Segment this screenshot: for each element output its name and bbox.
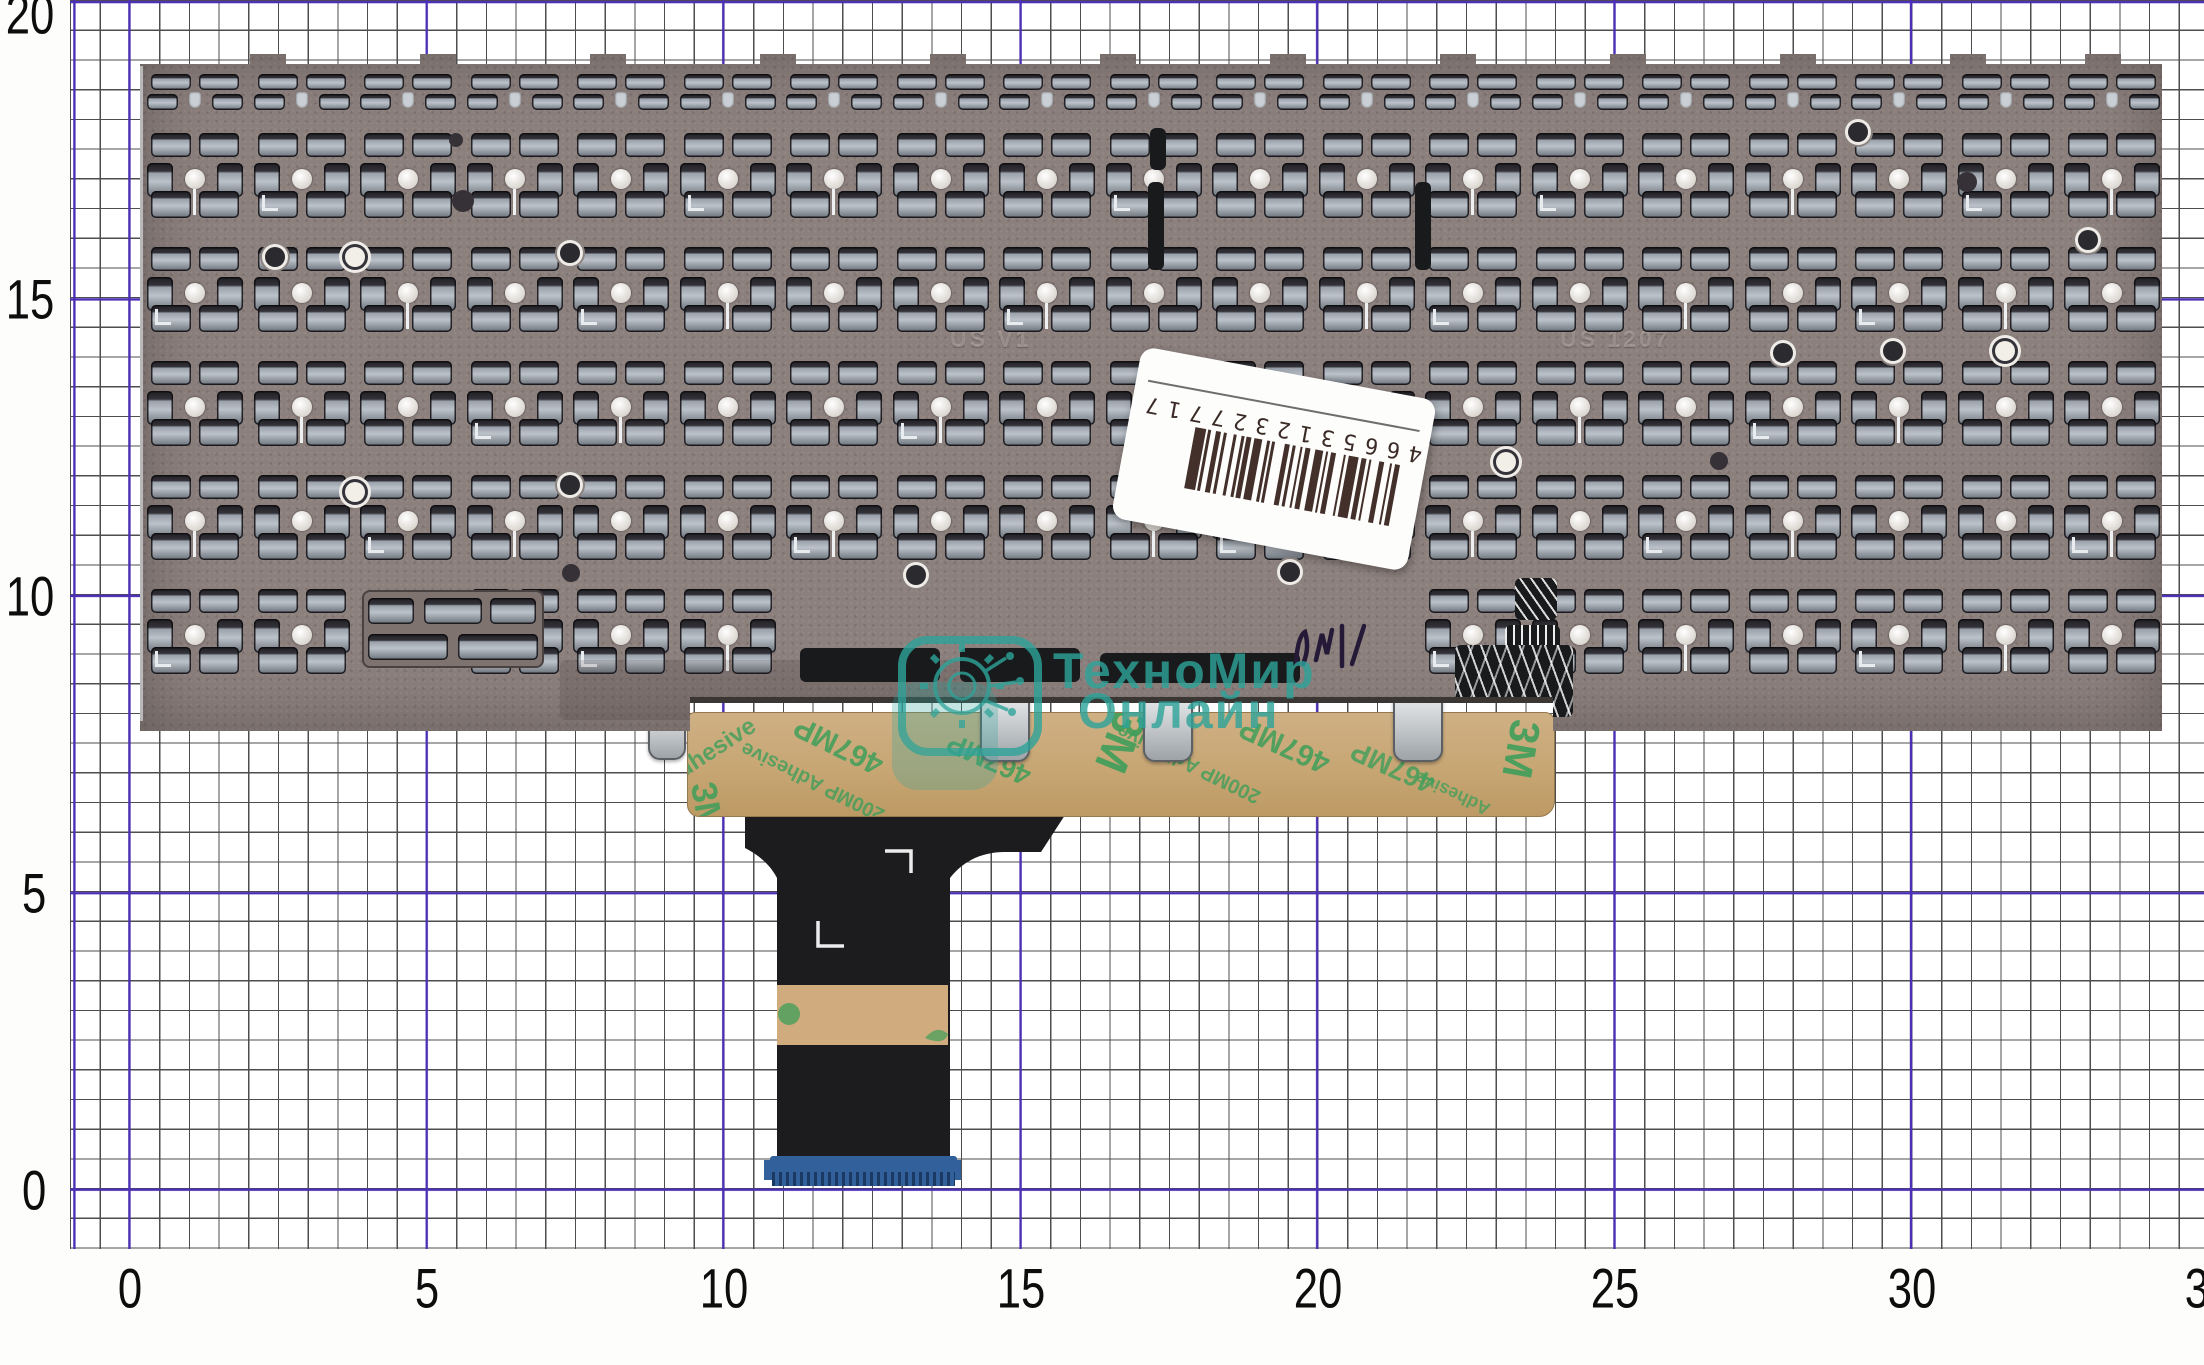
- connector-teeth: [772, 1172, 955, 1186]
- key-slot: [412, 247, 452, 271]
- plate-dark-dot: [452, 190, 474, 212]
- key-slot: [2068, 191, 2108, 218]
- clip-hook-highlight: [1646, 537, 1662, 553]
- ruler-y-label: 5: [6, 861, 47, 926]
- scissor-pivot-dot: [931, 397, 951, 417]
- key-slot: [945, 361, 985, 385]
- key-slot: [151, 361, 191, 385]
- key-slot: [2010, 589, 2050, 613]
- key-slot: [732, 589, 772, 613]
- key-arch: [2106, 92, 2118, 108]
- key-slot: [1855, 361, 1895, 385]
- key-slot: [790, 305, 830, 332]
- key-slot: [1584, 533, 1624, 560]
- key-slot: [1855, 419, 1895, 446]
- qc-marker-scribble: [1290, 618, 1380, 678]
- key-slot: [151, 533, 191, 560]
- key-slot: [519, 419, 559, 446]
- key-slot: [1477, 133, 1517, 157]
- key-slot: [1749, 305, 1789, 332]
- key-slot: [519, 475, 559, 499]
- key-slot: [684, 74, 724, 90]
- key-slot: [1536, 475, 1576, 499]
- key-slot: [786, 94, 817, 110]
- key-slot: [1749, 191, 1789, 218]
- key-slot: [1903, 589, 1943, 613]
- key-slot: [1110, 305, 1150, 332]
- key-arch: [615, 92, 627, 108]
- scissor-pivot-dot: [2102, 511, 2122, 531]
- clip-hook-highlight: [1540, 195, 1556, 211]
- screw-hole: [1883, 341, 1903, 361]
- scissor-pivot-dot: [1889, 283, 1909, 303]
- key-slot: [1690, 133, 1730, 157]
- key-slot: [412, 361, 452, 385]
- key-cluster: [467, 70, 563, 112]
- key-slot: [1429, 133, 1469, 157]
- key-slot: [258, 74, 298, 90]
- key-slot: [1584, 191, 1624, 218]
- key-slot: [1064, 94, 1095, 110]
- key-slot: [732, 133, 772, 157]
- key-slot: [790, 361, 830, 385]
- key-slot: [1749, 475, 1789, 499]
- key-slot: [1158, 305, 1198, 332]
- plate-left-edge-highlight: [140, 66, 143, 721]
- key-slot: [471, 533, 511, 560]
- spacebar-stabilizer-block: [362, 590, 544, 668]
- key-slot: [893, 94, 924, 110]
- key-slot: [1477, 533, 1517, 560]
- tape-print-text: 467MP: [1235, 712, 1336, 780]
- key-cluster: [1745, 247, 1841, 332]
- key-slot: [306, 191, 346, 218]
- key-slot: [897, 133, 937, 157]
- key-slot: [1536, 305, 1576, 332]
- scissor-pivot-dot: [611, 511, 631, 531]
- clip-hook-highlight: [2072, 537, 2088, 553]
- key-slot: [1277, 94, 1308, 110]
- key-slot: [1584, 361, 1624, 385]
- scissor-pivot-dot: [398, 511, 418, 531]
- key-slot: [1384, 94, 1415, 110]
- key-cluster: [1638, 475, 1734, 560]
- key-slot: [2068, 647, 2108, 674]
- key-slot: [2068, 133, 2108, 157]
- key-slot: [519, 361, 559, 385]
- scissor-pivot-dot: [1570, 169, 1590, 189]
- membrane-trace-line: [1152, 531, 1155, 557]
- key-slot: [2116, 74, 2156, 90]
- key-cluster: [1425, 361, 1521, 446]
- key-slot: [1051, 533, 1091, 560]
- key-slot: [1003, 133, 1043, 157]
- key-cluster: [1638, 361, 1734, 446]
- screw-hole: [1848, 122, 1868, 142]
- key-slot: [1584, 647, 1624, 674]
- key-slot: [732, 191, 772, 218]
- scissor-pivot-dot: [1570, 511, 1590, 531]
- scissor-pivot-dot: [1676, 397, 1696, 417]
- membrane-trace-line: [513, 531, 516, 557]
- key-slot: [732, 475, 772, 499]
- key-slot: [897, 74, 937, 90]
- key-slot: [577, 247, 617, 271]
- key-slot: [1797, 361, 1837, 385]
- membrane-trace-line: [1365, 303, 1368, 329]
- key-cluster: [999, 361, 1095, 446]
- key-slot: [625, 419, 665, 446]
- key-arch: [1254, 92, 1266, 108]
- ruler-x-label: 20: [1294, 1256, 1343, 1321]
- membrane-trace-line: [406, 303, 409, 329]
- scissor-pivot-dot: [1463, 625, 1483, 645]
- key-slot: [1903, 191, 1943, 218]
- key-slot: [1797, 533, 1837, 560]
- key-slot: [1797, 419, 1837, 446]
- key-slot: [1855, 533, 1895, 560]
- key-slot: [2068, 475, 2108, 499]
- key-slot: [2116, 589, 2156, 613]
- key-slot: [790, 191, 830, 218]
- key-slot: [258, 133, 298, 157]
- key-slot: [2068, 74, 2108, 90]
- key-slot: [1323, 74, 1363, 90]
- key-slot: [1642, 361, 1682, 385]
- clip-hook-highlight: [688, 195, 704, 211]
- key-slot: [1690, 191, 1730, 218]
- key-slot: [945, 247, 985, 271]
- key-slot: [1051, 475, 1091, 499]
- key-slot: [368, 634, 448, 660]
- key-slot: [1323, 305, 1363, 332]
- key-slot: [684, 305, 724, 332]
- key-slot: [306, 74, 346, 90]
- key-cluster: [2064, 475, 2160, 560]
- key-slot: [1371, 133, 1411, 157]
- scissor-pivot-dot: [292, 625, 312, 645]
- key-slot: [1903, 305, 1943, 332]
- plate-dark-dot: [1957, 172, 1977, 192]
- key-slot: [1158, 533, 1198, 560]
- key-slot: [1797, 74, 1837, 90]
- key-cluster: [360, 133, 456, 218]
- key-slot: [897, 533, 937, 560]
- plate-dark-dot: [449, 133, 463, 147]
- key-cluster: [786, 361, 882, 446]
- scissor-pivot-dot: [185, 625, 205, 645]
- key-slot: [1323, 133, 1363, 157]
- key-arch: [1041, 92, 1053, 108]
- key-cluster: [1638, 589, 1734, 674]
- key-slot: [1425, 94, 1456, 110]
- key-slot: [1051, 247, 1091, 271]
- key-slot: [1749, 589, 1789, 613]
- key-slot: [368, 598, 414, 624]
- key-slot: [412, 419, 452, 446]
- key-cluster: [254, 475, 350, 560]
- key-cluster: [680, 133, 776, 218]
- key-slot: [945, 74, 985, 90]
- key-slot: [1003, 419, 1043, 446]
- key-cluster: [680, 361, 776, 446]
- membrane-trace-line: [2110, 189, 2113, 215]
- key-slot: [1597, 94, 1628, 110]
- key-slot: [151, 247, 191, 271]
- product-photo-stage: 20151050 05101520253035 Adhesive467MP200…: [0, 0, 2204, 1365]
- key-slot: [199, 419, 239, 446]
- key-arch: [189, 92, 201, 108]
- key-slot: [790, 74, 830, 90]
- key-slot: [1642, 247, 1682, 271]
- key-slot: [1003, 361, 1043, 385]
- flex-trace-window: [1150, 128, 1166, 170]
- key-slot: [532, 94, 563, 110]
- membrane-trace-line: [2004, 303, 2007, 329]
- key-slot: [1642, 133, 1682, 157]
- key-slot: [577, 74, 617, 90]
- key-slot: [2010, 647, 2050, 674]
- key-slot: [1110, 247, 1150, 271]
- key-arch: [1361, 92, 1373, 108]
- key-slot: [2010, 191, 2050, 218]
- flex-trace-window: [800, 648, 940, 682]
- key-cluster: [1319, 133, 1415, 218]
- key-slot: [1371, 191, 1411, 218]
- key-slot: [1110, 533, 1150, 560]
- scissor-pivot-dot: [292, 283, 312, 303]
- scissor-pivot-dot: [505, 283, 525, 303]
- cable-tape-band: [777, 985, 948, 1045]
- key-slot: [1642, 647, 1682, 674]
- key-cluster: [1958, 70, 2054, 112]
- key-slot: [1690, 247, 1730, 271]
- clip-hook-highlight: [1859, 651, 1875, 667]
- key-slot: [2116, 247, 2156, 271]
- key-slot: [425, 94, 456, 110]
- key-slot: [1110, 133, 1150, 157]
- scissor-pivot-dot: [1996, 397, 2016, 417]
- key-slot: [1477, 589, 1517, 613]
- key-cluster: [2064, 361, 2160, 446]
- flex-trace-window: [960, 648, 1080, 682]
- scissor-pivot-dot: [1996, 169, 2016, 189]
- key-slot: [625, 191, 665, 218]
- scissor-pivot-dot: [824, 397, 844, 417]
- key-slot: [1855, 589, 1895, 613]
- scissor-pivot-dot: [1676, 169, 1696, 189]
- key-slot: [1536, 361, 1576, 385]
- scissor-pivot-dot: [1570, 625, 1590, 645]
- membrane-trace-line: [1578, 417, 1581, 443]
- key-slot: [412, 133, 452, 157]
- key-cluster: [1958, 361, 2054, 446]
- key-slot: [151, 589, 191, 613]
- key-slot: [790, 419, 830, 446]
- clip-hook-highlight: [155, 651, 171, 667]
- clip-hook-highlight: [262, 195, 278, 211]
- key-slot: [838, 475, 878, 499]
- key-cluster: [147, 475, 243, 560]
- scissor-pivot-dot: [611, 397, 631, 417]
- key-slot: [199, 361, 239, 385]
- key-slot: [306, 247, 346, 271]
- key-slot: [1962, 74, 2002, 90]
- key-slot: [1110, 74, 1150, 90]
- key-cluster: [1851, 70, 1947, 112]
- scissor-pivot-dot: [1463, 169, 1483, 189]
- key-cluster: [2064, 589, 2160, 674]
- key-slot: [519, 191, 559, 218]
- plate-dark-dot: [562, 564, 580, 582]
- screw-hole: [560, 475, 580, 495]
- scissor-pivot-dot: [1037, 397, 1057, 417]
- key-slot: [1797, 305, 1837, 332]
- key-slot: [519, 133, 559, 157]
- key-slot: [1319, 94, 1350, 110]
- key-slot: [1429, 361, 1469, 385]
- clip-hook-highlight: [1433, 651, 1449, 667]
- key-arch: [1467, 92, 1479, 108]
- key-slot: [306, 589, 346, 613]
- key-slot: [1690, 647, 1730, 674]
- key-slot: [1051, 305, 1091, 332]
- key-slot: [1851, 94, 1882, 110]
- key-slot: [412, 74, 452, 90]
- clip-hook-highlight: [1433, 309, 1449, 325]
- key-slot: [1690, 305, 1730, 332]
- key-slot: [199, 247, 239, 271]
- key-slot: [577, 361, 617, 385]
- key-slot: [577, 533, 617, 560]
- key-slot: [732, 247, 772, 271]
- membrane-trace-line: [726, 303, 729, 329]
- key-slot: [1855, 191, 1895, 218]
- key-slot: [199, 647, 239, 674]
- key-cluster: [1425, 247, 1521, 332]
- ruler-x-label: 10: [700, 1256, 749, 1321]
- clip-hook-highlight: [901, 423, 917, 439]
- key-slot: [1536, 74, 1576, 90]
- key-slot: [2129, 94, 2160, 110]
- tape-print-text: 3M: [1492, 716, 1549, 782]
- key-cluster: [999, 247, 1095, 332]
- key-slot: [1749, 247, 1789, 271]
- key-arch: [1148, 92, 1160, 108]
- key-cluster: [2064, 247, 2160, 332]
- key-cluster: [254, 70, 350, 112]
- scissor-pivot-dot: [292, 397, 312, 417]
- membrane-trace-line: [939, 417, 942, 443]
- key-slot: [1642, 191, 1682, 218]
- key-slot: [1690, 74, 1730, 90]
- key-slot: [2116, 475, 2156, 499]
- key-cluster: [467, 133, 563, 218]
- key-slot: [2116, 191, 2156, 218]
- key-cluster: [786, 133, 882, 218]
- key-slot: [519, 305, 559, 332]
- key-slot: [838, 305, 878, 332]
- clip-hook-highlight: [1966, 195, 1982, 211]
- key-slot: [1371, 305, 1411, 332]
- key-slot: [1584, 589, 1624, 613]
- clip-hook-highlight: [155, 309, 171, 325]
- scissor-pivot-dot: [1463, 511, 1483, 531]
- scissor-pivot-dot: [1996, 625, 2016, 645]
- key-slot: [1584, 475, 1624, 499]
- key-slot: [1490, 94, 1521, 110]
- key-slot: [1216, 247, 1256, 271]
- membrane-trace-line: [1897, 417, 1900, 443]
- screw-hole: [906, 565, 926, 585]
- key-slot: [1642, 475, 1682, 499]
- key-cluster: [1425, 70, 1521, 112]
- key-slot: [1371, 247, 1411, 271]
- key-slot: [945, 133, 985, 157]
- key-cluster: [893, 133, 989, 218]
- key-slot: [684, 589, 724, 613]
- key-cluster: [1958, 475, 2054, 560]
- key-cluster: [1958, 589, 2054, 674]
- key-slot: [838, 419, 878, 446]
- key-slot: [1216, 74, 1256, 90]
- key-slot: [212, 94, 243, 110]
- key-slot: [1216, 133, 1256, 157]
- key-cluster: [893, 247, 989, 332]
- membrane-trace-line: [193, 531, 196, 557]
- key-slot: [1962, 419, 2002, 446]
- key-slot: [1962, 533, 2002, 560]
- key-slot: [2010, 247, 2050, 271]
- key-slot: [1051, 361, 1091, 385]
- scissor-pivot-dot: [1996, 283, 2016, 303]
- key-slot: [577, 191, 617, 218]
- membrane-trace-line: [2004, 645, 2007, 671]
- key-cluster: [1745, 133, 1841, 218]
- key-cluster: [1532, 70, 1628, 112]
- key-slot: [1638, 94, 1669, 110]
- scissor-pivot-dot: [1463, 397, 1483, 417]
- key-slot: [2010, 361, 2050, 385]
- key-slot: [1642, 74, 1682, 90]
- key-slot: [258, 419, 298, 446]
- key-arch: [1893, 92, 1905, 108]
- key-slot: [1584, 247, 1624, 271]
- key-slot: [1536, 247, 1576, 271]
- key-slot: [519, 533, 559, 560]
- scissor-pivot-dot: [398, 283, 418, 303]
- scissor-pivot-dot: [292, 511, 312, 531]
- scissor-pivot-dot: [824, 283, 844, 303]
- key-slot: [2116, 305, 2156, 332]
- key-cluster: [573, 133, 669, 218]
- key-slot: [412, 305, 452, 332]
- key-cluster: [1106, 70, 1202, 112]
- clip-hook-highlight: [581, 309, 597, 325]
- key-slot: [2010, 133, 2050, 157]
- scissor-pivot-dot: [505, 169, 525, 189]
- screw-hole: [345, 482, 365, 502]
- key-slot: [1003, 533, 1043, 560]
- key-slot: [2010, 419, 2050, 446]
- key-slot: [199, 533, 239, 560]
- key-slot: [1903, 647, 1943, 674]
- key-slot: [2068, 247, 2108, 271]
- key-slot: [1690, 533, 1730, 560]
- key-slot: [897, 191, 937, 218]
- key-slot: [1855, 74, 1895, 90]
- key-slot: [1797, 475, 1837, 499]
